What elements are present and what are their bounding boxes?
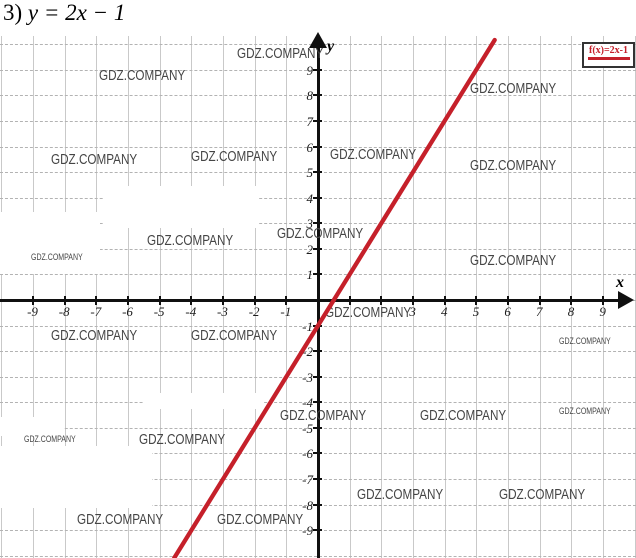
plot-area: x y -9-8-7-6-5-4-3-2-13456789987654321-1… xyxy=(0,0,636,558)
function-line xyxy=(0,0,636,558)
title-prefix: 3) xyxy=(3,0,22,25)
chart-title: 3) y = 2x − 1 xyxy=(3,0,125,26)
legend-box: f(x)=2x-1 xyxy=(582,42,635,68)
legend-line-sample xyxy=(588,57,630,60)
title-equation: y = 2x − 1 xyxy=(28,0,125,25)
legend-label: f(x)=2x-1 xyxy=(584,45,633,56)
